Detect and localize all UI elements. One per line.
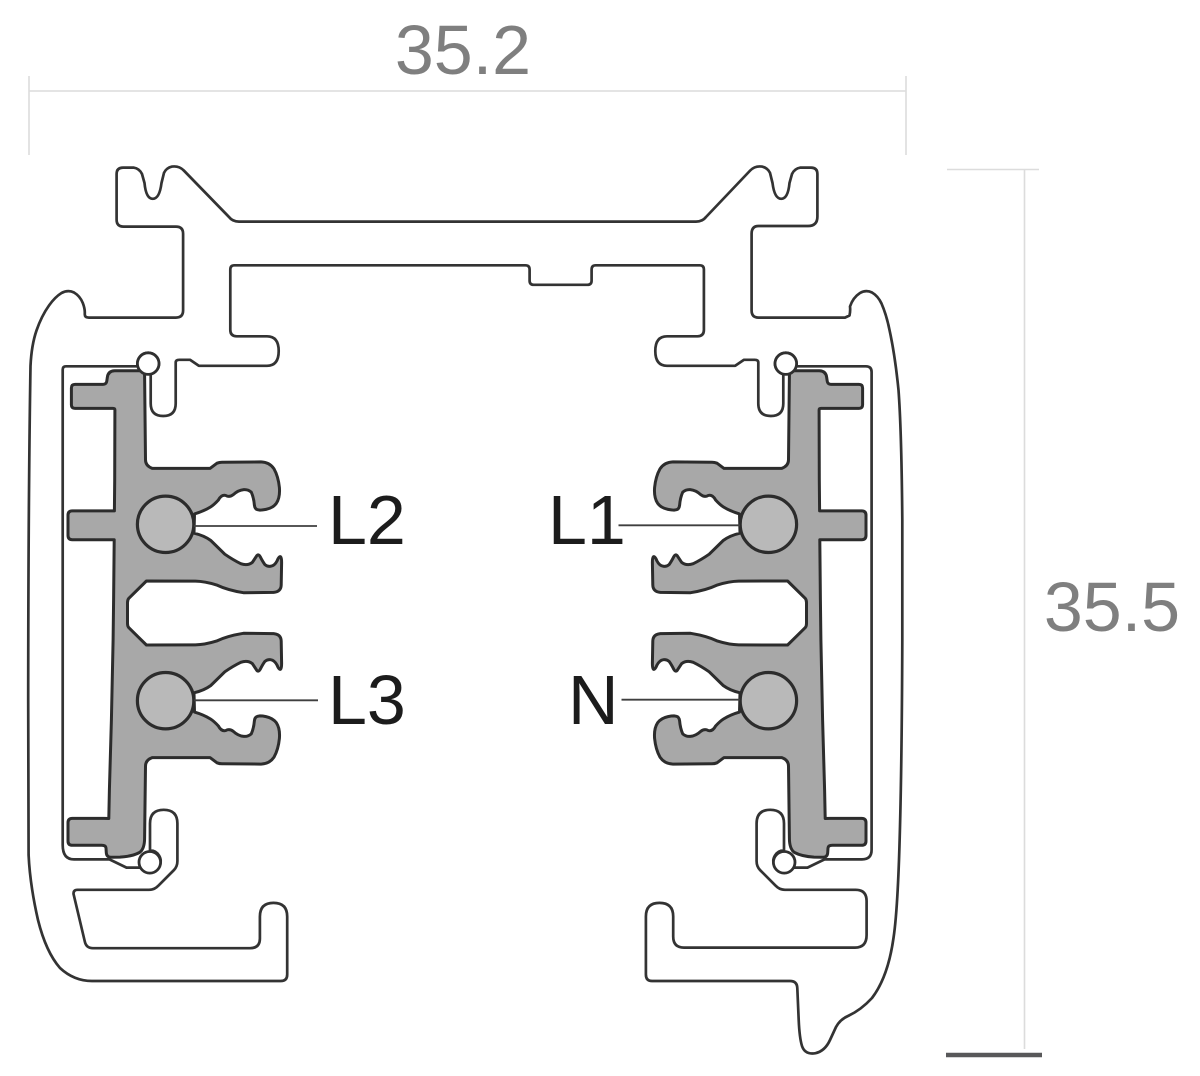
svg-text:L2: L2 [328, 481, 406, 559]
svg-text:L3: L3 [328, 661, 406, 739]
svg-text:L1: L1 [548, 481, 626, 559]
svg-text:N: N [568, 661, 619, 739]
svg-text:35.5: 35.5 [1044, 568, 1180, 646]
svg-text:35.2: 35.2 [395, 11, 531, 89]
